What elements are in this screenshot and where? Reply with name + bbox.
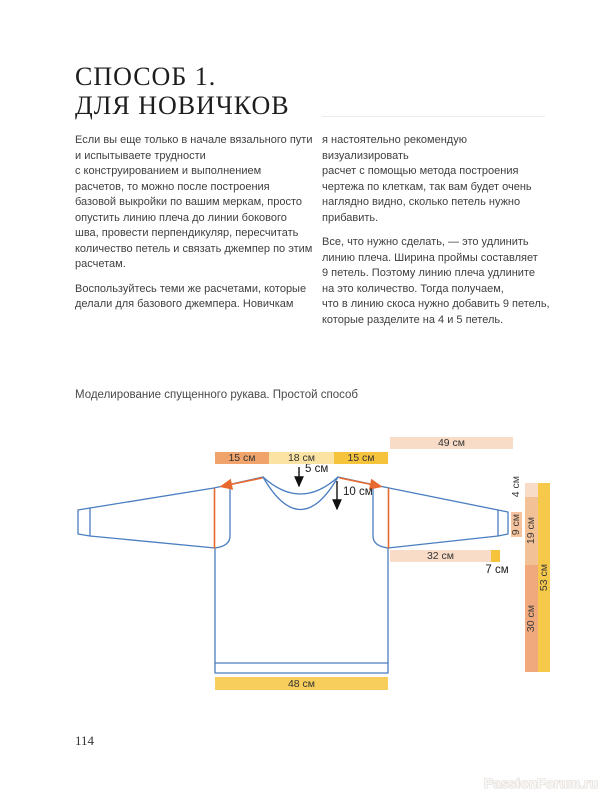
paragraph: Все, что нужно сделать, — это удлинить л…	[322, 235, 554, 328]
shoulder-drop-label-box: 4 см	[509, 470, 523, 503]
measure-bar-bottom-48cm: 48 см	[215, 677, 388, 690]
paragraph: Воспользуйтесь теми же расчетами, которы…	[75, 282, 327, 313]
cuff-height-label: 9 см	[511, 514, 522, 535]
back-neckline	[263, 477, 338, 494]
measure-bar-49cm: 49 см	[390, 437, 513, 449]
paragraph: я настоятельно рекомендую визуализироват…	[322, 133, 554, 226]
paragraph: Если вы еще только в начале вязального п…	[75, 133, 327, 273]
front-neckline	[263, 477, 338, 510]
armhole-depth-label: 19 см	[526, 517, 537, 544]
left-sleeve-underside	[90, 536, 215, 548]
right-sleeve-underside	[388, 536, 498, 548]
left-shoulder-extension-arrow	[221, 478, 262, 487]
measure-bar-shoulders-neck: 15 см 18 см 15 см	[215, 452, 388, 464]
segment-shoulder-left: 15 см	[215, 452, 269, 464]
measure-bar-total-53cm: 53 см	[538, 483, 550, 672]
segment-side-30cm: 30 см	[525, 565, 538, 672]
left-cuff	[78, 508, 90, 536]
figure-diagram: 5 см 10 см 49 см 15 см 18 см 15 см 32 см…	[0, 420, 610, 730]
segment-shoulder-right: 15 см	[334, 452, 388, 464]
sleeve-extra-label: 7 см	[477, 564, 517, 576]
watermark: PassionForum.ru	[484, 776, 598, 791]
segment-armhole-19cm: 19 см	[525, 497, 538, 565]
segment-shoulder-drop-4cm	[525, 483, 538, 497]
right-column-rule	[322, 116, 545, 117]
back-neck-depth-label: 5 см	[305, 463, 328, 475]
segment-neck-width: 18 см	[269, 452, 334, 464]
right-cuff	[498, 510, 508, 536]
book-page: СПОСОБ 1. ДЛЯ НОВИЧКОВ Если вы еще тольк…	[0, 0, 610, 800]
measure-bar-length-segments: 19 см 30 см	[525, 483, 538, 672]
shoulder-drop-label: 4 см	[511, 476, 522, 497]
measure-bar-sleeve: 32 см	[390, 550, 500, 562]
front-neck-depth-label: 10 см	[343, 486, 373, 498]
side-length-label: 30 см	[526, 605, 537, 632]
segment-sleeve-extra-7cm	[491, 550, 500, 562]
page-number: 114	[75, 733, 94, 749]
right-text-column: я настоятельно рекомендую визуализироват…	[322, 133, 554, 328]
left-armhole-curve	[215, 488, 230, 548]
left-shoulder-sleeve-top	[90, 477, 263, 508]
right-armhole-curve	[373, 488, 388, 548]
total-length-label: 53 см	[539, 564, 550, 591]
left-text-column: Если вы еще только в начале вязального п…	[75, 133, 327, 313]
body-outline	[215, 548, 388, 673]
page-title: СПОСОБ 1. ДЛЯ НОВИЧКОВ	[75, 62, 290, 120]
measure-bar-cuff-9cm: 9 см	[511, 512, 522, 537]
figure-caption: Моделирование спущенного рукава. Простой…	[75, 389, 358, 401]
segment-sleeve-32cm: 32 см	[390, 550, 491, 562]
